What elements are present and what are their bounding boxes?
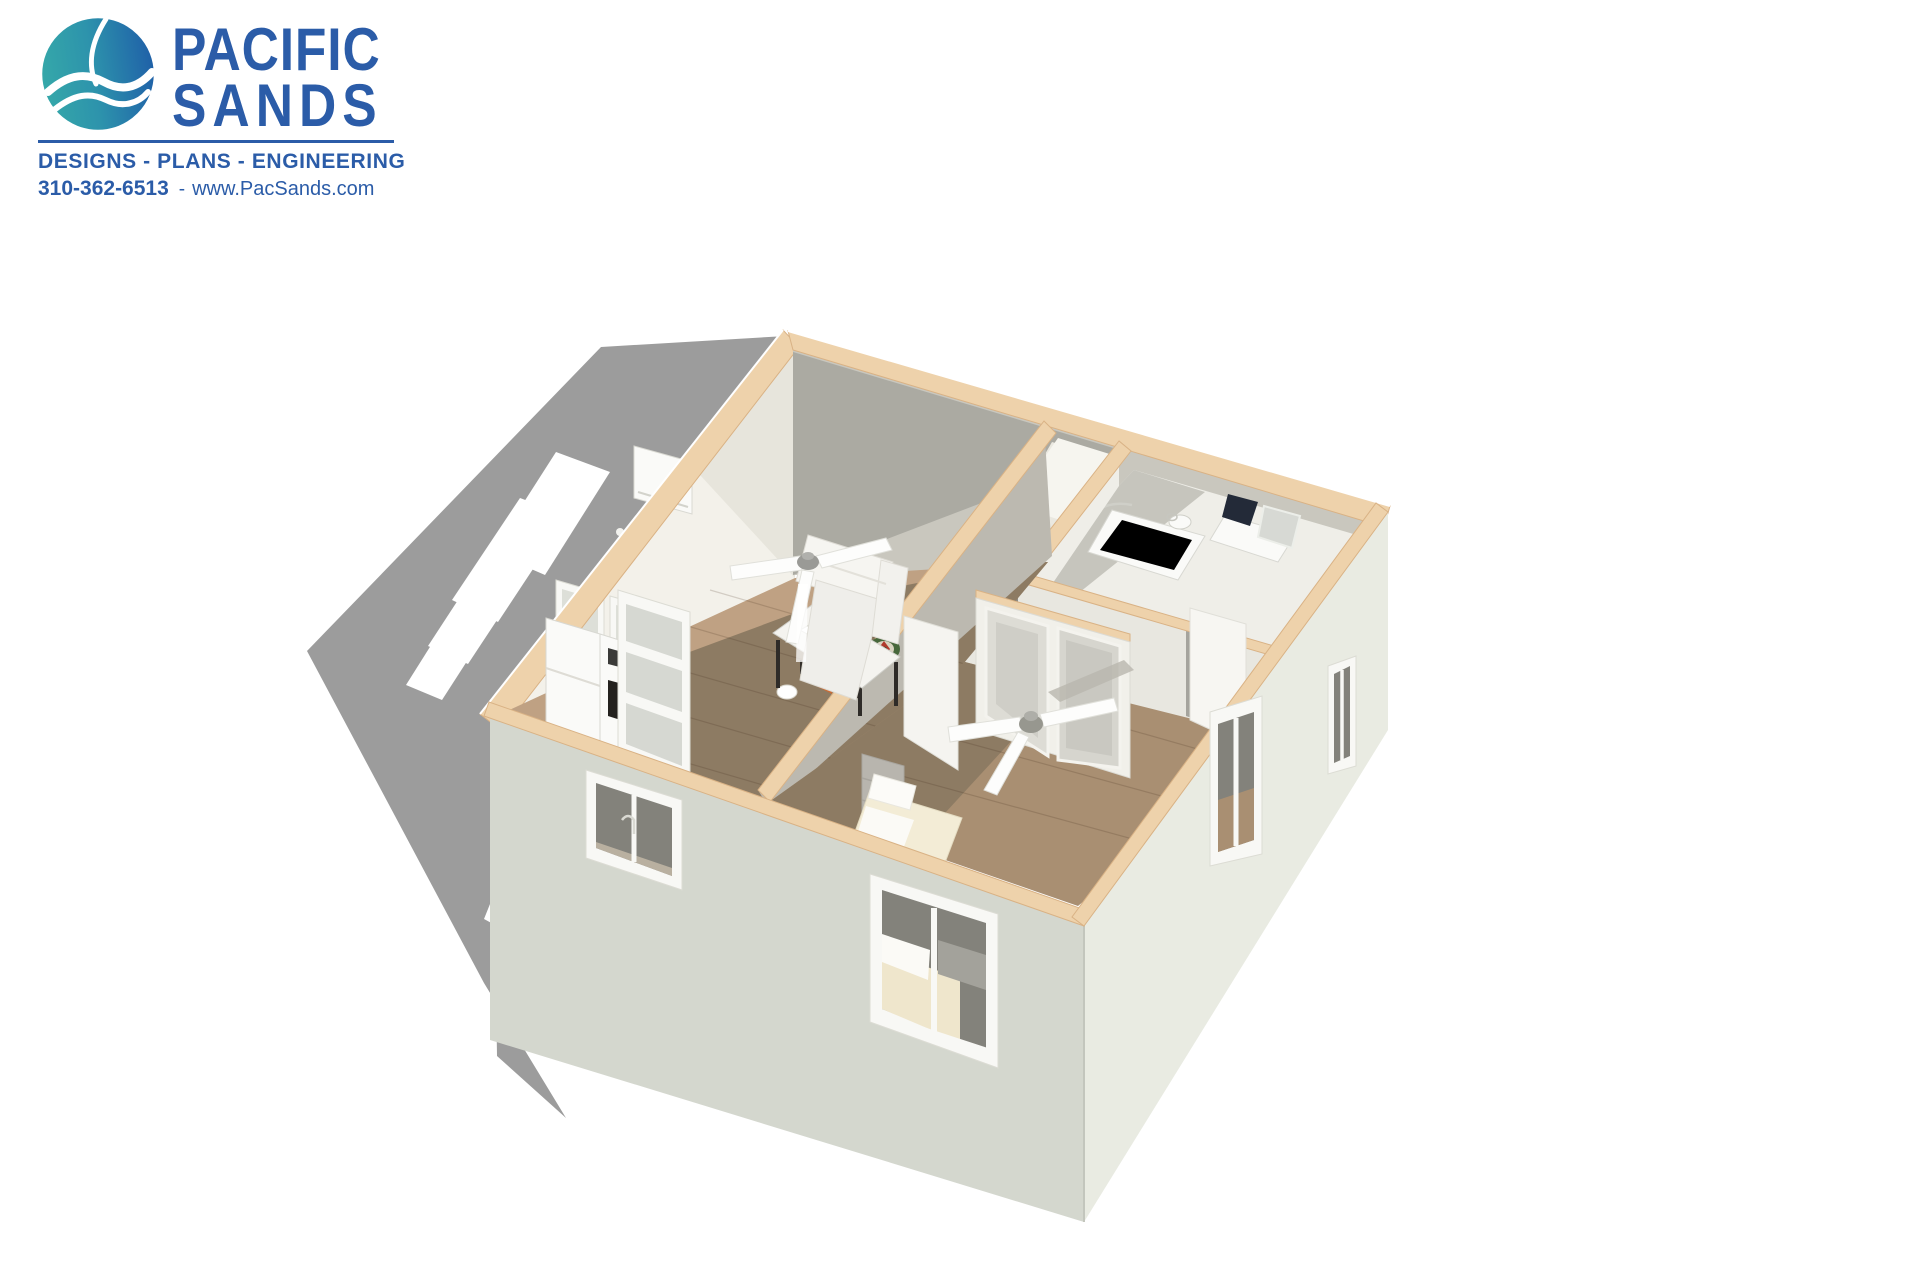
front-right-window-large	[1210, 696, 1262, 866]
front-right-window-small	[1328, 656, 1356, 774]
toilet	[1169, 515, 1191, 529]
floorplan-3d-rendering	[0, 0, 1920, 1280]
